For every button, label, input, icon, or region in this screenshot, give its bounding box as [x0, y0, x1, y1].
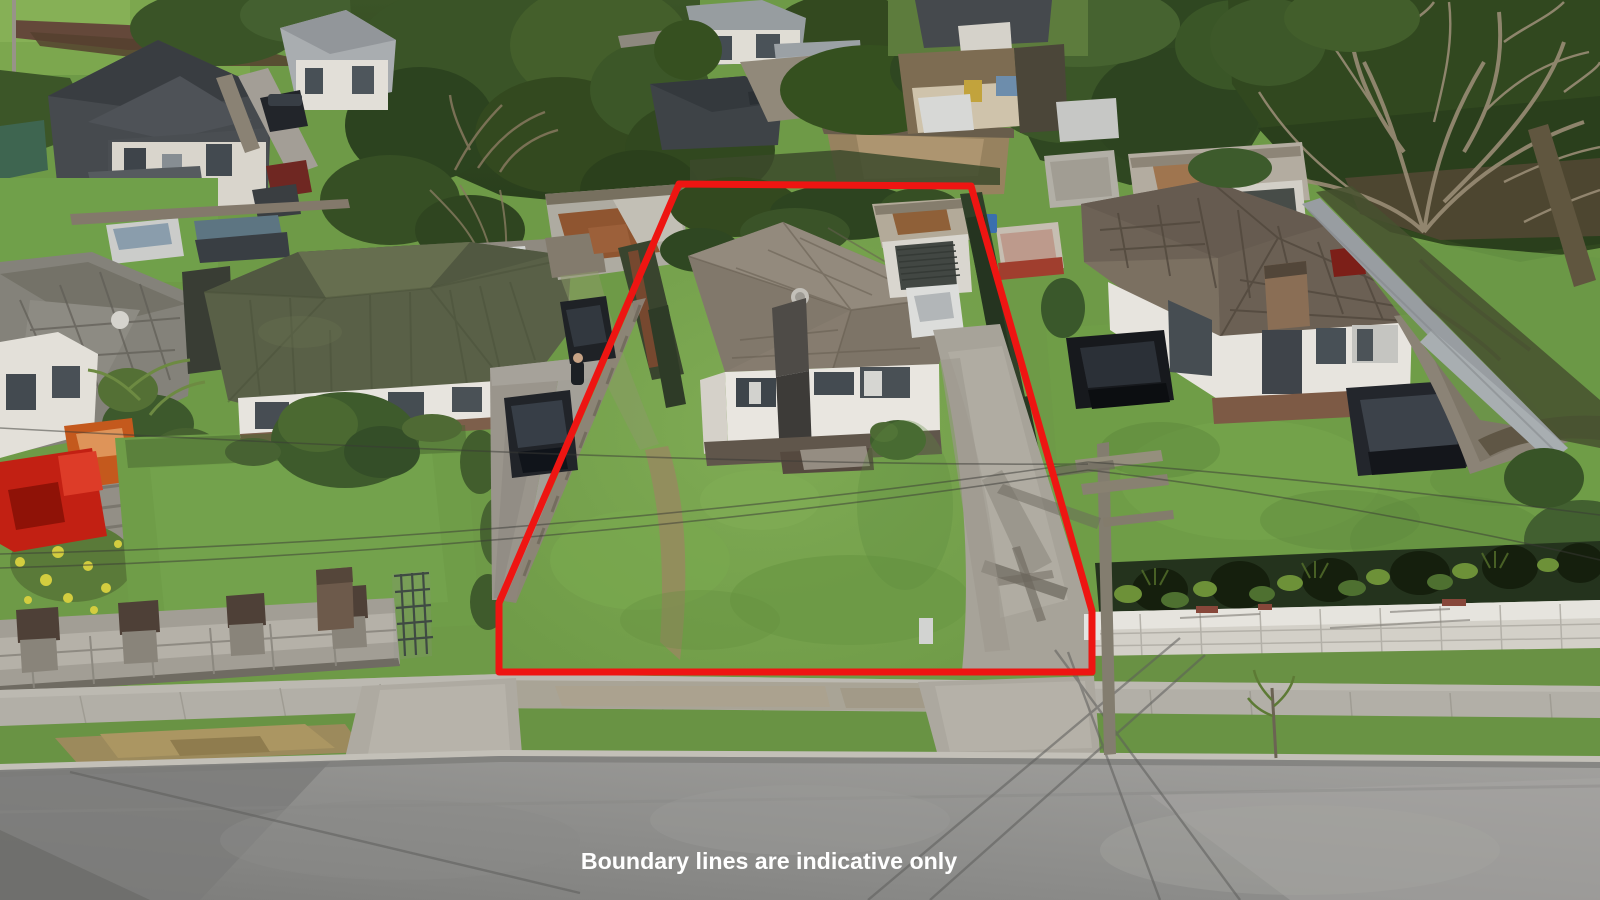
svg-text:Boundary lines are indicative: Boundary lines are indicative only [581, 848, 957, 874]
